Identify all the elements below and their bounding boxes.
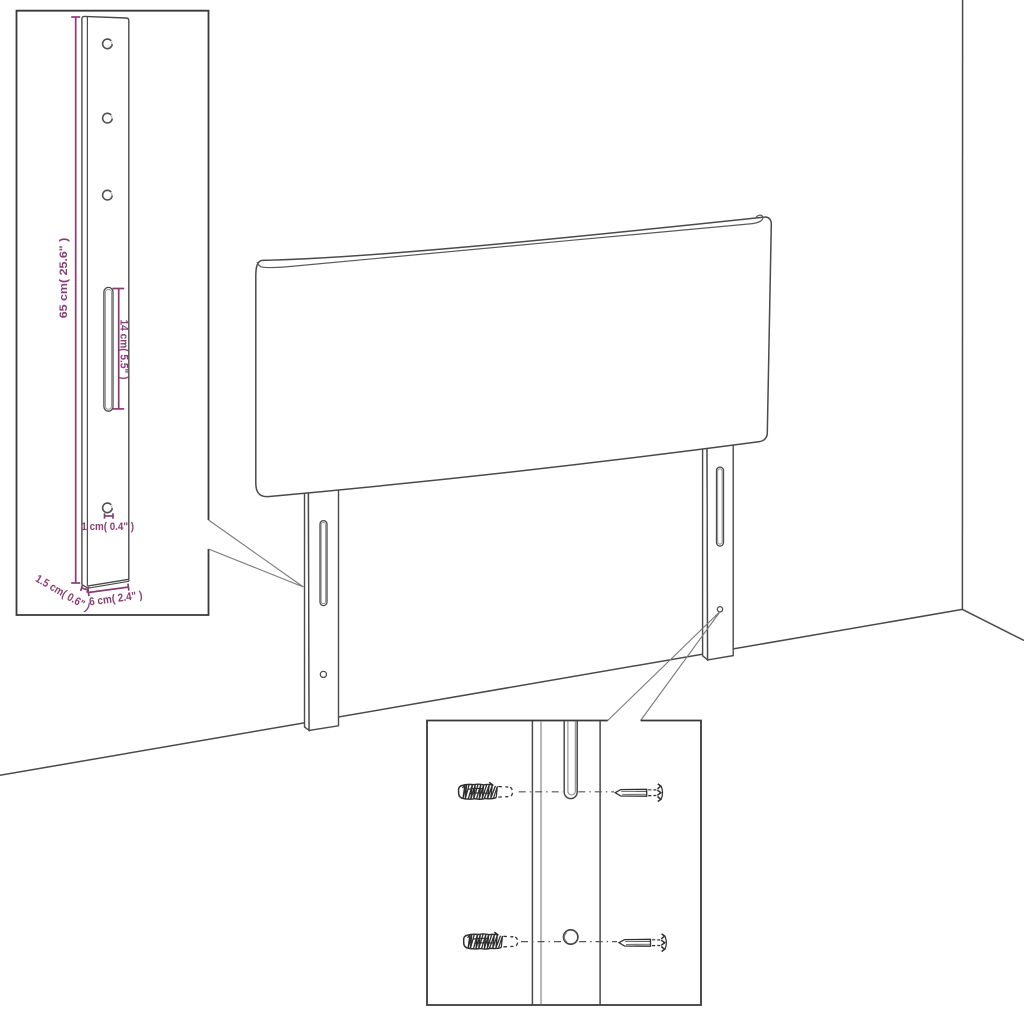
svg-text:65 cm( 25.6" ): 65 cm( 25.6" ) xyxy=(58,237,70,318)
svg-text:1 cm( 0.4" ): 1 cm( 0.4" ) xyxy=(81,521,134,533)
svg-text:14 cm( 5.5" ): 14 cm( 5.5" ) xyxy=(117,320,129,380)
